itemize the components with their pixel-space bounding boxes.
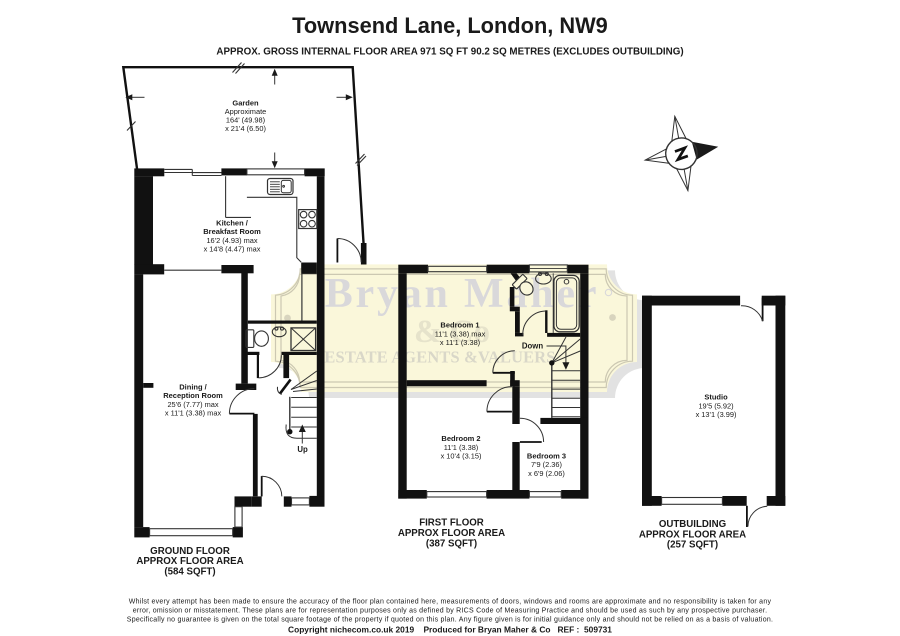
svg-text:FIRST FLOOR: FIRST FLOOR: [419, 518, 484, 529]
svg-text:x 13'1 (3.99): x 13'1 (3.99): [696, 410, 737, 419]
svg-text:(257 SQFT): (257 SQFT): [667, 540, 718, 551]
svg-text:error, omission or misstatemen: error, omission or misstatement. These p…: [133, 608, 768, 615]
svg-text:x 11'1 (3.38) max: x 11'1 (3.38) max: [165, 409, 222, 418]
svg-text:x 11'1 (3.38): x 11'1 (3.38): [440, 338, 480, 347]
svg-text:(584 SQFT): (584 SQFT): [164, 567, 215, 578]
svg-text:Bedroom 2: Bedroom 2: [441, 434, 480, 443]
svg-text:Down: Down: [522, 342, 543, 351]
svg-text:x 14'8 (4.47) max: x 14'8 (4.47) max: [204, 245, 261, 254]
svg-text:11'1 (3.38) max: 11'1 (3.38) max: [435, 329, 486, 338]
svg-text:APPROX FLOOR AREA: APPROX FLOOR AREA: [398, 528, 505, 539]
svg-text:19'5 (5.92): 19'5 (5.92): [698, 401, 733, 410]
svg-text:x 21'4 (6.50): x 21'4 (6.50): [225, 124, 266, 133]
svg-text:11'1 (3.38): 11'1 (3.38): [444, 443, 479, 452]
svg-text:Studio: Studio: [704, 393, 728, 402]
svg-text:APPROX FLOOR AREA: APPROX FLOOR AREA: [136, 556, 243, 567]
svg-text:Whilst every attempt has been: Whilst every attempt has been made to en…: [129, 599, 772, 606]
svg-text:Reception Room: Reception Room: [163, 391, 223, 400]
svg-text:7'9 (2.36): 7'9 (2.36): [531, 460, 562, 469]
svg-text:Townsend Lane, London, NW9: Townsend Lane, London, NW9: [292, 13, 608, 38]
svg-text:GROUND FLOOR: GROUND FLOOR: [150, 546, 230, 557]
svg-text:OUTBUILDING: OUTBUILDING: [659, 519, 726, 530]
svg-text:Bedroom 1: Bedroom 1: [440, 321, 479, 330]
svg-text:Bryan Maher: Bryan Maher: [325, 271, 600, 317]
svg-text:(387 SQFT): (387 SQFT): [426, 539, 477, 550]
svg-text:Dining /: Dining /: [179, 382, 207, 391]
svg-text:Bedroom 3: Bedroom 3: [527, 451, 566, 460]
svg-text:25'6 (7.77) max: 25'6 (7.77) max: [167, 400, 218, 409]
svg-text:16'2 (4.93) max: 16'2 (4.93) max: [206, 236, 257, 245]
svg-text:APPROX FLOOR AREA: APPROX FLOOR AREA: [639, 529, 746, 540]
svg-text:x 6'9 (2.06): x 6'9 (2.06): [528, 469, 565, 478]
svg-text:Breakfast Room: Breakfast Room: [203, 227, 261, 236]
svg-text:Up: Up: [297, 445, 308, 454]
svg-text:Specifically no guarantee is g: Specifically no guarantee is given on th…: [127, 617, 773, 624]
svg-text:Kitchen /: Kitchen /: [216, 218, 249, 227]
svg-text:Copyright nichecom.co.uk 2019: Copyright nichecom.co.uk 2019 Produced f…: [288, 625, 612, 635]
svg-text:APPROX. GROSS INTERNAL FLOOR A: APPROX. GROSS INTERNAL FLOOR AREA 971 SQ…: [216, 47, 683, 58]
svg-text:x 10'4 (3.15): x 10'4 (3.15): [441, 452, 482, 461]
